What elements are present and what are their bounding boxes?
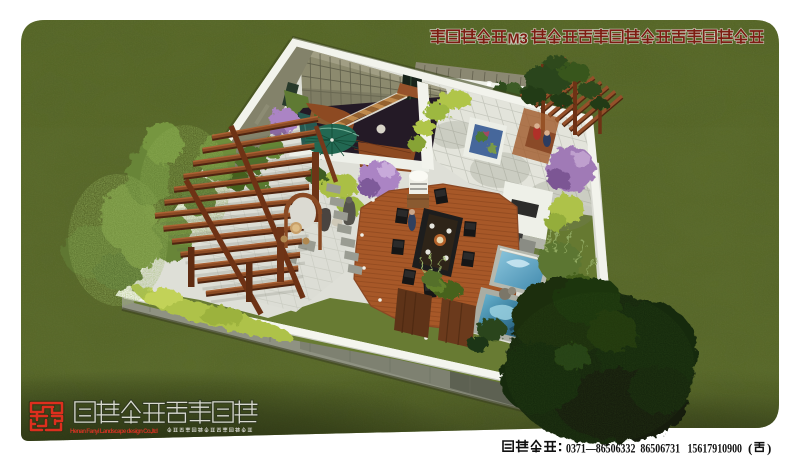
svg-text:): ) xyxy=(767,441,771,456)
svg-text:M3: M3 xyxy=(508,32,528,48)
svg-text:Henan Fanyi Landscape design C: Henan Fanyi Landscape design Co.,ltd xyxy=(70,428,158,435)
svg-text:(: ( xyxy=(748,441,752,456)
svg-text:0371—86506332 86506731 1561: 0371—86506332 86506731 15617910900 xyxy=(566,441,742,456)
